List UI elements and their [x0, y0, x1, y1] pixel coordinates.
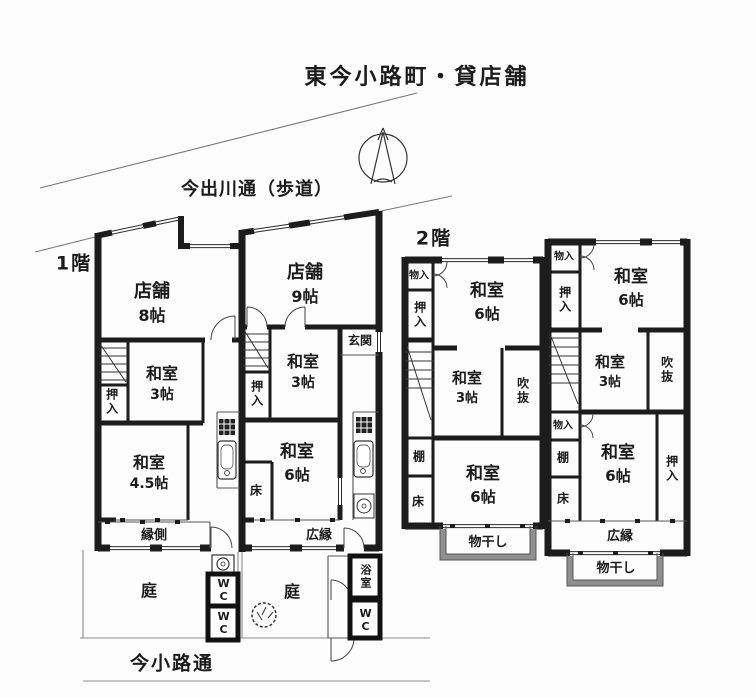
room-f2r-oshiire-left: 押入 — [557, 286, 570, 314]
kitchen-stove-icon-left — [219, 419, 235, 435]
room-f1r-toko: 床 — [250, 484, 262, 497]
room-f2r-washitsu3: 和室 3帖 — [595, 354, 625, 390]
kitchen-sink-icon-mid — [354, 441, 373, 477]
room-size: 6帖 — [470, 489, 495, 506]
page-title: 東今小路町・貸店舗 — [304, 66, 529, 90]
room-f2r-washitsu6-top: 和室 6帖 — [614, 268, 648, 308]
room-f1r-shop: 店舗 9帖 — [287, 263, 323, 305]
floor-label-1f: 1階 — [56, 254, 92, 275]
room-name: 和室 — [614, 268, 648, 287]
room-f1l-wc-upper: WC — [217, 577, 229, 603]
room-name: 和室 — [470, 282, 504, 301]
room-f1l-washitsu3: 和室 3帖 — [146, 365, 178, 403]
north-compass-icon — [359, 128, 407, 184]
room-f2r-fukinuke: 吹抜 — [659, 356, 672, 384]
room-size: 8帖 — [138, 307, 165, 325]
room-name: 和室 — [280, 443, 314, 462]
room-f1l-wc-lower: WC — [217, 610, 229, 636]
room-size: 3帖 — [599, 376, 621, 390]
room-f1l-oshiire: 押入 — [104, 388, 117, 416]
room-f2r-washitsu6-bottom: 和室 6帖 — [601, 444, 635, 484]
room-f2l-oshiire: 押入 — [412, 301, 425, 329]
room-f2r-monoire-top: 物入 — [554, 252, 574, 263]
room-f2l-tana: 棚 — [413, 450, 425, 463]
room-name: 店舗 — [287, 263, 323, 283]
room-f2l-fukinuke: 吹抜 — [515, 377, 528, 405]
floor-label-2f: 2階 — [416, 229, 452, 250]
room-f2l-washitsu6-top: 和室 6帖 — [470, 282, 504, 322]
room-size: 3帖 — [150, 388, 174, 403]
room-f2l-washitsu6-bottom: 和室 6帖 — [466, 465, 500, 505]
room-f2r-monoire-mid: 物入 — [553, 421, 573, 432]
room-f2l-monoire: 物入 — [409, 271, 429, 282]
room-f1r-genkan: 玄関 — [348, 334, 372, 347]
room-f1l-garden: 庭 — [141, 582, 157, 600]
washing-machine-icon — [212, 555, 234, 573]
room-size: 6帖 — [284, 467, 309, 484]
kitchen-sink-icon-left — [218, 441, 236, 479]
room-f2r-monohoshi: 物干し — [596, 562, 635, 576]
room-size: 6帖 — [605, 468, 630, 485]
garden-stone-icon — [252, 603, 276, 627]
room-size: 6帖 — [618, 292, 643, 309]
room-f2r-toko: 床 — [557, 492, 569, 505]
room-size: 3帖 — [291, 376, 315, 391]
fusuma-ticks — [105, 520, 680, 553]
room-size: 3帖 — [456, 392, 478, 406]
street-label-imadegawa: 今出川通（歩道） — [181, 180, 333, 200]
room-f2r-hiroen: 広縁 — [607, 530, 633, 544]
room-name: 店舗 — [134, 282, 170, 302]
room-size: 6帖 — [474, 306, 499, 323]
room-name: 和室 — [595, 354, 625, 371]
room-f1r-wc: WC — [359, 607, 371, 633]
room-f1l-washitsu45: 和室 4.5帖 — [130, 454, 169, 492]
room-f1l-shop: 店舗 8帖 — [134, 282, 170, 324]
room-f1r-hiroen: 広縁 — [306, 529, 332, 543]
room-f2r-oshiire-right: 押入 — [664, 455, 677, 483]
room-f2l-monohoshi: 物干し — [468, 536, 507, 550]
room-f2l-washitsu3: 和室 3帖 — [452, 370, 482, 406]
room-name: 和室 — [146, 365, 178, 383]
room-name: 和室 — [133, 454, 165, 472]
floorplan-drawing — [0, 0, 756, 698]
room-f1r-washitsu3: 和室 3帖 — [287, 353, 319, 391]
street-label-imakoji: 今小路通 — [130, 654, 214, 675]
room-size: 9帖 — [291, 288, 318, 306]
room-f1l-engawa: 縁側 — [141, 529, 167, 543]
floorplan-page: 東今小路町・貸店舗 今出川通（歩道） 今小路通 1階 2階 店舗 8帖 和室 3… — [0, 0, 756, 698]
basin-icon-mid — [354, 494, 374, 518]
room-name: 和室 — [287, 353, 319, 371]
kitchen-stove-icon-mid — [356, 417, 372, 433]
room-f1r-oshiire: 押入 — [249, 380, 262, 408]
room-f2r-tana: 棚 — [557, 451, 569, 464]
room-f1r-bath: 浴室 — [359, 564, 371, 590]
room-f1r-washitsu6: 和室 6帖 — [280, 443, 314, 483]
room-name: 和室 — [601, 444, 635, 463]
room-f2l-toko: 床 — [412, 495, 424, 508]
room-name: 和室 — [452, 370, 482, 387]
room-name: 和室 — [466, 465, 500, 484]
room-size: 4.5帖 — [130, 477, 169, 492]
room-f1r-garden: 庭 — [284, 583, 300, 601]
